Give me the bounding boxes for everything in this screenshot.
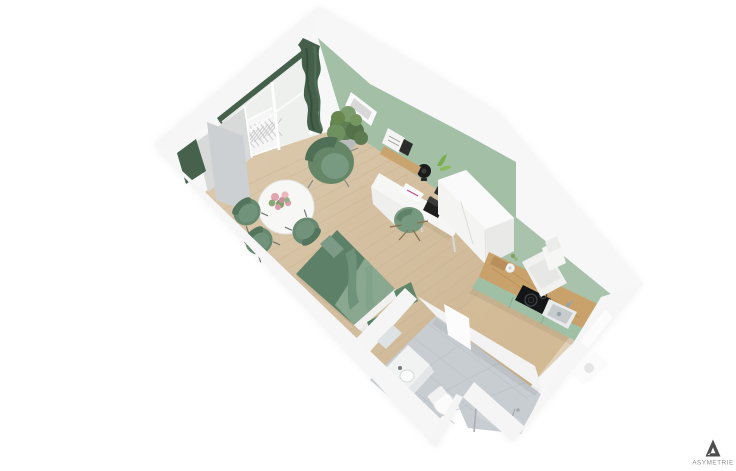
svg-text:ASYMETRIE: ASYMETRIE	[692, 460, 733, 467]
